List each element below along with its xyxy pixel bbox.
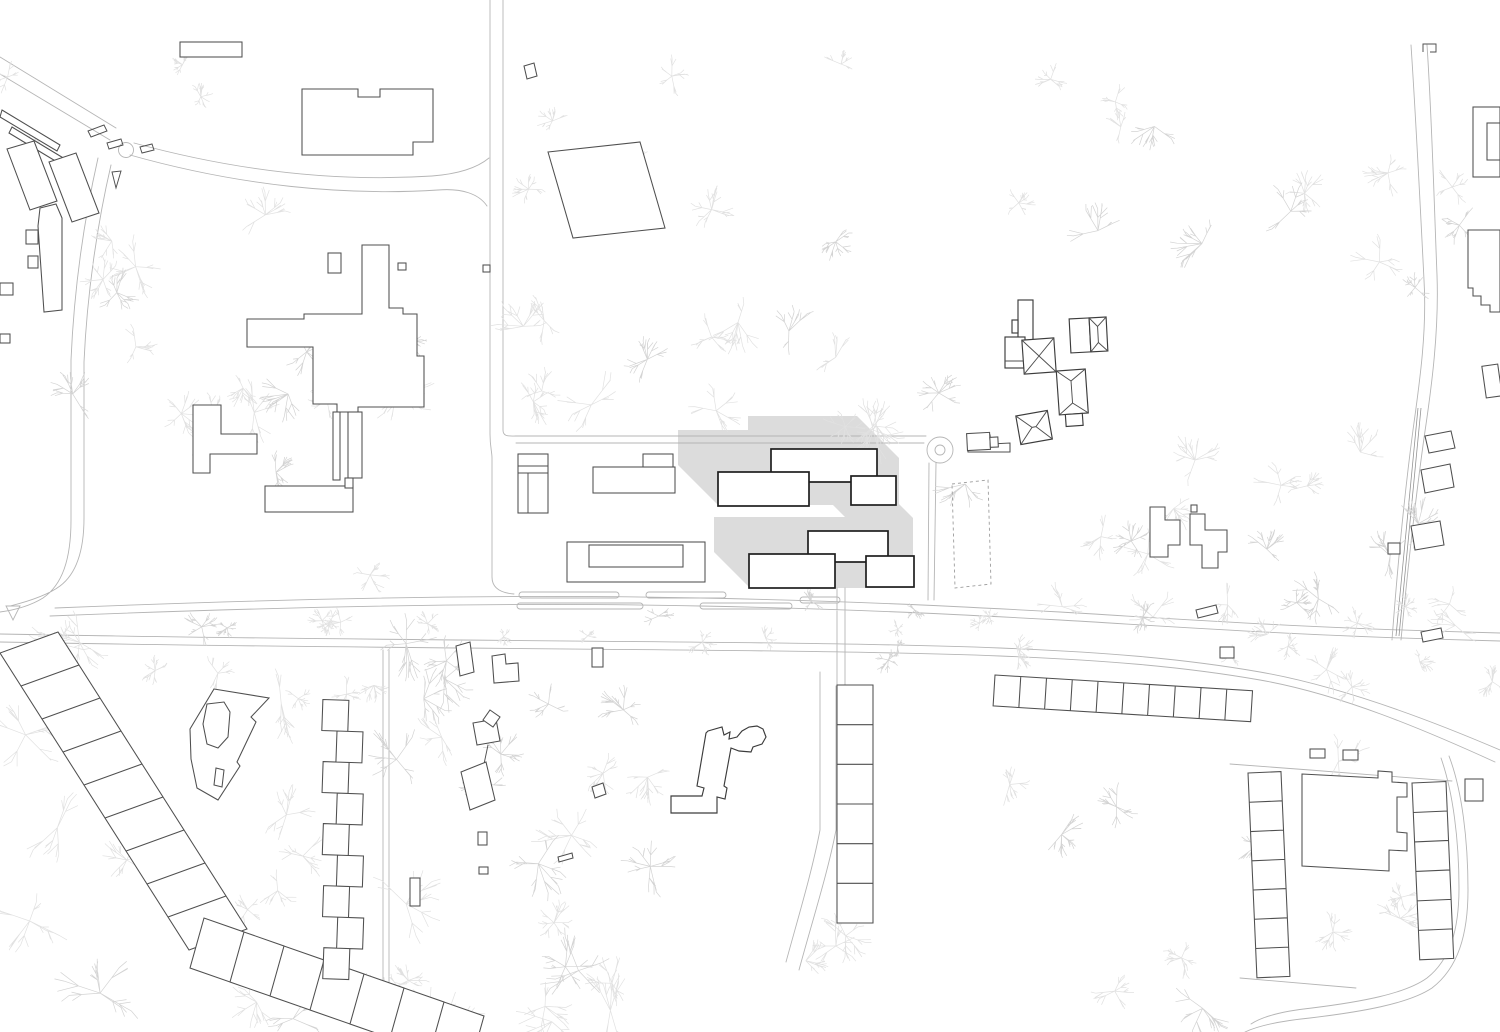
tree-symbol <box>192 83 213 108</box>
tree-symbol <box>917 375 961 411</box>
narrow-stepped-building <box>38 204 62 312</box>
tree-symbol <box>626 769 669 805</box>
small-building <box>967 432 991 450</box>
tree-symbol <box>1437 170 1468 205</box>
terrace-cells <box>1412 782 1454 960</box>
tree-symbol <box>1008 189 1035 215</box>
site-plan-drawing <box>0 0 1500 1032</box>
sports-field-dashed <box>952 480 991 588</box>
tree-symbol <box>1213 583 1238 625</box>
street-notch-building <box>1310 749 1325 758</box>
small-building <box>990 437 999 447</box>
roundabout-outer <box>927 437 953 463</box>
farm-annex <box>1012 320 1018 333</box>
parking-strip <box>517 603 643 609</box>
tree-symbol <box>184 613 221 646</box>
edge-building-stepped <box>1468 230 1500 312</box>
tree-symbol <box>279 837 322 877</box>
hipped-roof-pair <box>1069 317 1108 353</box>
tree-symbol <box>110 234 161 298</box>
proposed-building <box>866 556 914 587</box>
tree-symbol <box>1113 521 1149 558</box>
tree-symbol <box>1362 155 1406 197</box>
campus-inner-court <box>589 545 683 567</box>
tree-symbol <box>418 715 452 766</box>
tree-symbol <box>558 371 616 432</box>
tree-symbol <box>1170 220 1211 268</box>
hospital-wing <box>333 412 340 480</box>
tree-symbol <box>1176 988 1229 1032</box>
tree-symbol <box>208 656 235 693</box>
tree-symbol <box>259 379 299 422</box>
tree-symbol <box>51 372 89 419</box>
tree-symbol <box>896 640 905 657</box>
courtyard-building <box>190 689 269 800</box>
tree-symbol <box>907 603 924 619</box>
tree-symbol <box>660 55 689 96</box>
farm-building <box>1056 369 1088 415</box>
roadside-building <box>1220 647 1234 658</box>
l-shaped-building <box>193 405 257 473</box>
farm-porch <box>1065 413 1083 426</box>
hospital-wing <box>348 412 362 478</box>
top-edge-building <box>180 42 242 57</box>
lane-building <box>1421 464 1454 493</box>
tree-symbol <box>1091 975 1134 1009</box>
tree-symbol <box>491 301 547 331</box>
tree-symbol <box>0 893 67 952</box>
tree-symbol <box>27 793 78 863</box>
tree-symbol <box>266 784 316 840</box>
tree-symbol <box>1163 942 1196 979</box>
tree-symbol <box>1253 462 1301 505</box>
tree-symbol <box>538 900 572 938</box>
street-notch-building <box>1343 750 1358 760</box>
tree-symbol <box>142 655 167 685</box>
tree-symbol <box>55 959 138 1019</box>
edge-building <box>1482 364 1500 398</box>
farm-building <box>1069 318 1091 353</box>
church-building <box>671 726 766 813</box>
terrace-cells <box>993 675 1252 722</box>
hipped-roof-building <box>1056 369 1089 427</box>
shed <box>479 867 488 874</box>
shed <box>478 832 487 845</box>
detached-house <box>1190 514 1227 568</box>
outbuilding <box>328 253 341 273</box>
campus-building <box>593 467 675 493</box>
tree-symbol <box>689 630 718 655</box>
mini-roundabout <box>119 143 134 158</box>
tree-symbol <box>1415 650 1436 672</box>
tree-symbol <box>353 563 390 593</box>
traffic-island <box>112 171 121 188</box>
tree-symbol <box>537 107 567 130</box>
tree-symbol <box>1003 767 1030 806</box>
proposed-building <box>718 472 809 506</box>
roundabout-inner <box>935 445 945 455</box>
tree-symbol <box>498 629 512 646</box>
edge-building-court <box>1487 123 1500 160</box>
campus-building <box>518 454 548 513</box>
tree-symbol <box>1343 607 1375 639</box>
hipped-roof-building <box>1016 410 1053 444</box>
tree-symbol <box>125 324 157 363</box>
traffic-island <box>88 125 107 137</box>
small-house-l <box>492 654 519 683</box>
tree-symbol <box>1035 63 1067 90</box>
tree-symbol <box>804 589 823 611</box>
edge-building <box>0 283 13 295</box>
tree-symbol <box>1129 592 1174 624</box>
proposed-building <box>851 476 896 505</box>
edge-building <box>1465 779 1483 801</box>
tree-symbol <box>933 484 983 508</box>
tree-symbol <box>824 50 852 69</box>
tree-symbol <box>709 297 759 354</box>
tree-symbol <box>1278 632 1300 660</box>
tree-symbol <box>0 61 19 93</box>
tree-symbol <box>1388 883 1417 911</box>
tree-symbol <box>1478 665 1500 697</box>
tree-symbol <box>1080 515 1116 561</box>
tree-symbol <box>1248 529 1284 561</box>
u-complex-right-row <box>1412 782 1454 960</box>
farm-cluster <box>967 300 1108 452</box>
tree-symbol <box>621 841 676 898</box>
small-house <box>456 642 474 676</box>
small-house <box>592 648 603 667</box>
tree-symbol <box>417 611 439 634</box>
tree-symbol <box>822 230 853 261</box>
tree-symbol <box>358 685 388 702</box>
tree-symbol <box>1067 203 1120 242</box>
large-notched-building <box>302 89 433 155</box>
traffic-island <box>107 139 123 149</box>
farm-building <box>1016 410 1053 444</box>
tree-symbol <box>688 384 741 432</box>
tree-symbol <box>529 684 569 718</box>
u-complex-left-row <box>1248 772 1290 978</box>
small-marker-building <box>398 263 406 270</box>
hipped-roof-building <box>1022 338 1056 374</box>
top-right-bracket <box>1423 44 1436 52</box>
tree-symbol <box>762 625 777 650</box>
tree-symbol <box>691 186 734 228</box>
campus-annex <box>643 454 673 467</box>
tree-symbol <box>100 268 139 310</box>
tree-symbol <box>1347 422 1383 457</box>
small-marker-building <box>524 63 537 79</box>
small-annex <box>28 256 38 268</box>
hospital-south-bar <box>265 486 353 512</box>
tree-symbol <box>1173 436 1219 486</box>
tree-symbol <box>285 689 310 710</box>
tree-symbol <box>598 685 641 725</box>
lane-building <box>1425 431 1455 453</box>
tree-symbol <box>587 970 628 1032</box>
tree-symbol <box>216 622 236 638</box>
farm-building <box>1018 300 1033 340</box>
tree-symbol <box>522 367 561 400</box>
tree-symbol <box>509 835 566 901</box>
shed <box>1388 543 1400 554</box>
tree-symbol <box>1280 589 1311 617</box>
tree-symbol <box>260 870 296 907</box>
tree-symbol <box>1350 234 1402 281</box>
tree-symbol <box>1037 582 1087 615</box>
terrace-cells <box>1248 772 1290 978</box>
tree-symbol <box>275 669 294 744</box>
tree-symbol <box>1131 126 1175 150</box>
tree-symbol <box>1403 272 1430 299</box>
shed <box>1191 505 1197 512</box>
garage-row <box>993 675 1252 722</box>
tree-symbol <box>776 305 814 355</box>
road-bump <box>483 265 490 272</box>
lane-building <box>1411 521 1444 550</box>
tree-symbol <box>173 56 188 75</box>
u-complex-central-building <box>1302 771 1407 871</box>
tree-symbol <box>1098 783 1138 829</box>
tree-symbol <box>1048 814 1083 858</box>
tree-symbol <box>1248 617 1281 642</box>
terrace-cells <box>837 685 873 923</box>
small-annex <box>26 230 38 244</box>
tree-symbol <box>1101 84 1128 120</box>
tree-symbol <box>1315 912 1352 952</box>
lane-building <box>410 878 420 906</box>
tree-symbol <box>1106 109 1126 143</box>
south-terrace-row <box>837 685 873 923</box>
tree-symbol <box>91 226 117 259</box>
tree-symbol <box>512 174 545 203</box>
tree-symbol <box>1369 531 1405 579</box>
proposed-building <box>749 554 835 588</box>
tree-symbol <box>817 332 850 372</box>
tree-symbol <box>1428 586 1467 624</box>
rotated-slab-building <box>548 142 665 238</box>
thin-slab <box>558 853 573 862</box>
farm-building <box>1089 317 1108 352</box>
site-plan-canvas <box>0 0 1500 1032</box>
tree-symbol <box>531 295 559 345</box>
roadside-building <box>1196 605 1218 618</box>
parking-strip <box>519 592 619 598</box>
tree-symbol <box>691 313 737 351</box>
tree-symbol <box>624 336 668 382</box>
edge-building <box>0 334 10 343</box>
small-house <box>461 762 495 810</box>
roadside-building <box>1421 628 1443 642</box>
tree-symbol <box>889 620 903 637</box>
tree-symbol <box>368 729 414 784</box>
tree-symbol <box>1293 572 1340 625</box>
tree-symbol <box>1285 170 1323 213</box>
tree-symbol <box>1288 472 1324 494</box>
tree-symbol <box>521 383 549 425</box>
tree-symbol <box>243 187 291 235</box>
hospital-connector <box>345 478 353 488</box>
tree-symbol <box>644 608 674 625</box>
